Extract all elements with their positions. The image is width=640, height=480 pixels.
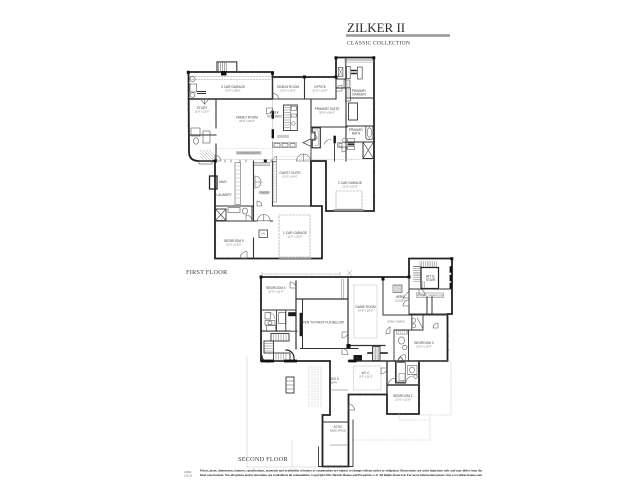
svg-text:12'-0" x 15'-0": 12'-0" x 15'-0" (280, 89, 295, 92)
svg-text:12'-0" x 13'-0": 12'-0" x 13'-0" (268, 290, 283, 293)
svg-text:KITCHEN: KITCHEN (268, 114, 283, 118)
svg-text:HERS: HERS (396, 295, 405, 299)
svg-text:11'-0" x 22'-0": 11'-0" x 22'-0" (287, 235, 302, 238)
svg-text:12.6.21: 12.6.21 (184, 474, 193, 477)
svg-text:GUEST SUITE: GUEST SUITE (279, 171, 300, 175)
svg-text:W.I.C.: W.I.C. (362, 371, 371, 375)
svg-text:FIRST FLOOR: FIRST FLOOR (186, 269, 228, 276)
svg-text:OFFICE: OFFICE (314, 85, 326, 89)
svg-text:12'-0" x 13'-0": 12'-0" x 13'-0" (226, 243, 241, 246)
svg-text:final construction. Not all o: final construction. Not all options and/… (200, 473, 483, 477)
svg-text:2 CAR GARAGE: 2 CAR GARAGE (338, 181, 362, 185)
svg-text:BATH: BATH (352, 131, 361, 135)
svg-text:9'-0" x 11'-0": 9'-0" x 11'-0" (359, 375, 373, 378)
svg-text:14'-0" x 18'-0": 14'-0" x 18'-0" (358, 309, 373, 312)
svg-text:STAIR: STAIR (426, 278, 436, 282)
svg-text:FAMILY ROOM: FAMILY ROOM (236, 116, 258, 120)
svg-text:OPEN TO FIRST FLR BELOW: OPEN TO FIRST FLR BELOW (300, 321, 344, 325)
svg-text:DINING ROOM: DINING ROOM (277, 85, 299, 89)
svg-text:11'-0" x 12'-0": 11'-0" x 12'-0" (194, 110, 209, 113)
svg-text:SECOND FLOOR: SECOND FLOOR (238, 456, 288, 463)
svg-text:ZILKER II: ZILKER II (347, 20, 405, 35)
svg-text:LAUNDRY: LAUNDRY (216, 193, 232, 197)
svg-text:LIN: LIN (261, 233, 265, 236)
svg-text:BEDROOM 4: BEDROOM 4 (266, 286, 285, 290)
svg-text:BATH: BATH (331, 381, 338, 384)
svg-text:POWDER: POWDER (259, 192, 270, 195)
svg-text:DEAD SPACE: DEAD SPACE (330, 429, 346, 432)
svg-text:BED 5: BED 5 (329, 377, 338, 381)
svg-text:18'-0" x 20'-0": 18'-0" x 20'-0" (239, 120, 254, 123)
svg-text:CLOSET: CLOSET (395, 299, 405, 302)
svg-text:3 CAR GARAGE: 3 CAR GARAGE (221, 85, 245, 89)
svg-text:CLASSIC COLLECTION: CLASSIC COLLECTION (347, 41, 410, 47)
svg-text:21'-0" x 22'-0": 21'-0" x 22'-0" (342, 185, 357, 188)
svg-text:11'-0" x 12'-0": 11'-0" x 12'-0" (312, 89, 327, 92)
svg-text:12'-0" x 14'-0": 12'-0" x 14'-0" (282, 175, 297, 178)
svg-text:21'-0" x 36'-0": 21'-0" x 36'-0" (225, 89, 240, 92)
svg-text:MUD: MUD (219, 180, 227, 184)
svg-text:PRIMARY SUITE: PRIMARY SUITE (315, 107, 340, 111)
svg-text:1 CAR GARAGE: 1 CAR GARAGE (283, 231, 307, 235)
svg-text:ATTIC: ATTIC (334, 425, 344, 429)
svg-text:12'-0" x 12'-0": 12'-0" x 12'-0" (395, 398, 410, 401)
svg-text:GARDEN: GARDEN (352, 92, 366, 96)
svg-text:BEDROOM 5: BEDROOM 5 (224, 239, 243, 243)
svg-text:GAME ROOM: GAME ROOM (355, 305, 376, 309)
svg-text:SODA / SNACK: SODA / SNACK (387, 321, 405, 324)
svg-text:12'-0" x 12'-0": 12'-0" x 12'-0" (416, 345, 431, 348)
svg-text:EXTENDED ENTRY: EXTENDED ENTRY (237, 152, 260, 155)
svg-text:STUDY: STUDY (197, 106, 209, 110)
svg-text:BEDROOM 3: BEDROOM 3 (414, 341, 433, 345)
svg-text:BEDROOM 2: BEDROOM 2 (393, 394, 412, 398)
svg-text:15'-0" x 18'-0": 15'-0" x 18'-0" (319, 111, 334, 114)
